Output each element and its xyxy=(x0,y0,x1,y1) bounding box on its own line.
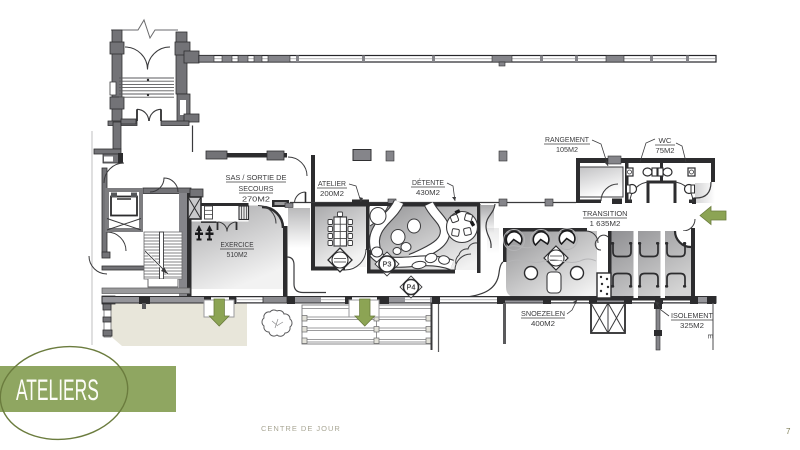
svg-text:CENTRE DE JOUR: CENTRE DE JOUR xyxy=(261,424,341,433)
svg-text:SECOURS: SECOURS xyxy=(239,184,274,193)
svg-text:105M2: 105M2 xyxy=(556,145,578,154)
svg-text:P3: P3 xyxy=(383,260,392,269)
svg-text:ISOLEMENT: ISOLEMENT xyxy=(671,311,714,320)
svg-text:1 635M2: 1 635M2 xyxy=(590,219,621,228)
svg-text:7: 7 xyxy=(786,427,791,436)
svg-text:400M2: 400M2 xyxy=(531,319,555,328)
svg-text:ATELIER: ATELIER xyxy=(318,179,346,188)
svg-text:75M2: 75M2 xyxy=(656,146,675,155)
svg-text:270M2: 270M2 xyxy=(242,195,270,204)
svg-text:SAS / SORTIE DE: SAS / SORTIE DE xyxy=(226,173,287,182)
svg-text:E: E xyxy=(706,334,715,339)
svg-text:SNOEZELEN: SNOEZELEN xyxy=(521,309,565,318)
svg-text:EXERCICE: EXERCICE xyxy=(221,240,254,249)
svg-text:P4: P4 xyxy=(407,283,416,292)
svg-text:WC: WC xyxy=(659,136,672,145)
svg-text:325M2: 325M2 xyxy=(680,321,704,330)
svg-text:430M2: 430M2 xyxy=(416,188,440,197)
svg-text:510M2: 510M2 xyxy=(227,250,248,259)
svg-text:200M2: 200M2 xyxy=(320,189,344,198)
svg-text:RANGEMENT: RANGEMENT xyxy=(545,135,590,144)
svg-text:DÉTENTE: DÉTENTE xyxy=(412,178,444,187)
svg-text:TRANSITION: TRANSITION xyxy=(583,209,628,218)
svg-text:ATELIERS: ATELIERS xyxy=(16,374,99,407)
